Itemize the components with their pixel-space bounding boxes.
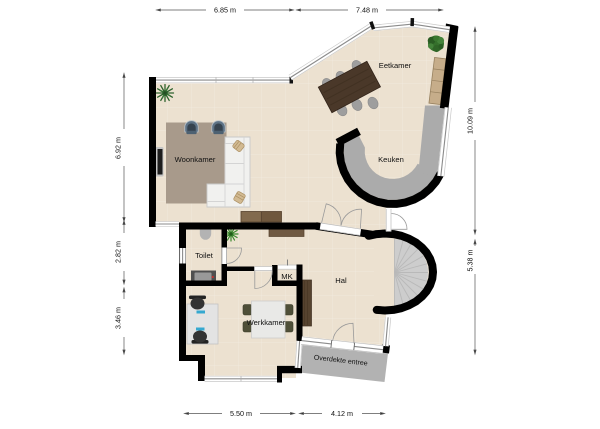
svg-text:Werkkamer: Werkkamer	[247, 318, 286, 327]
svg-text:6.85 m: 6.85 m	[214, 6, 236, 15]
svg-text:7.48 m: 7.48 m	[356, 6, 378, 15]
svg-text:Eetkamer: Eetkamer	[379, 61, 412, 70]
svg-text:2.82 m: 2.82 m	[114, 241, 123, 263]
svg-text:Hal: Hal	[335, 276, 347, 285]
svg-text:Keuken: Keuken	[378, 155, 404, 164]
svg-text:Toilet: Toilet	[195, 251, 214, 260]
svg-text:Woonkamer: Woonkamer	[175, 155, 216, 164]
svg-text:5.38 m: 5.38 m	[466, 250, 475, 272]
svg-text:6.92 m: 6.92 m	[114, 137, 123, 159]
svg-text:5.50 m: 5.50 m	[230, 409, 252, 418]
svg-text:10.09 m: 10.09 m	[466, 108, 475, 134]
svg-text:MK: MK	[281, 272, 292, 281]
svg-text:4.12 m: 4.12 m	[331, 409, 353, 418]
svg-text:3.46 m: 3.46 m	[114, 307, 123, 329]
